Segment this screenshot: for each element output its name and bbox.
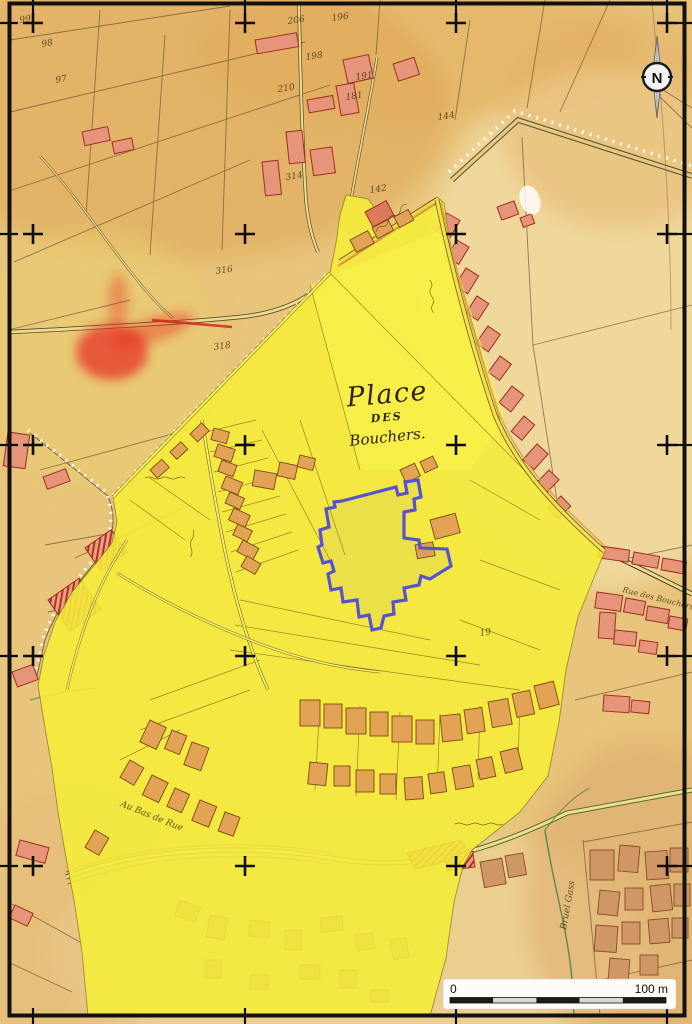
map-canvas[interactable]: Place DES Bouchers. 99989720619619819121… — [0, 0, 692, 1024]
compass-north-label: N — [652, 70, 663, 87]
historical-cadastral-map: Place DES Bouchers. 99989720619619819121… — [0, 0, 692, 1024]
scale-bar: 0 100 m — [443, 979, 676, 1009]
parcel-number: 98 — [41, 38, 54, 50]
scale-end-label: 100 m — [635, 982, 668, 996]
parcel-number: 19 — [479, 627, 492, 639]
scale-bar-segments — [450, 998, 666, 1004]
scale-start-label: 0 — [450, 982, 457, 996]
parcel-number: 97 — [55, 74, 68, 86]
